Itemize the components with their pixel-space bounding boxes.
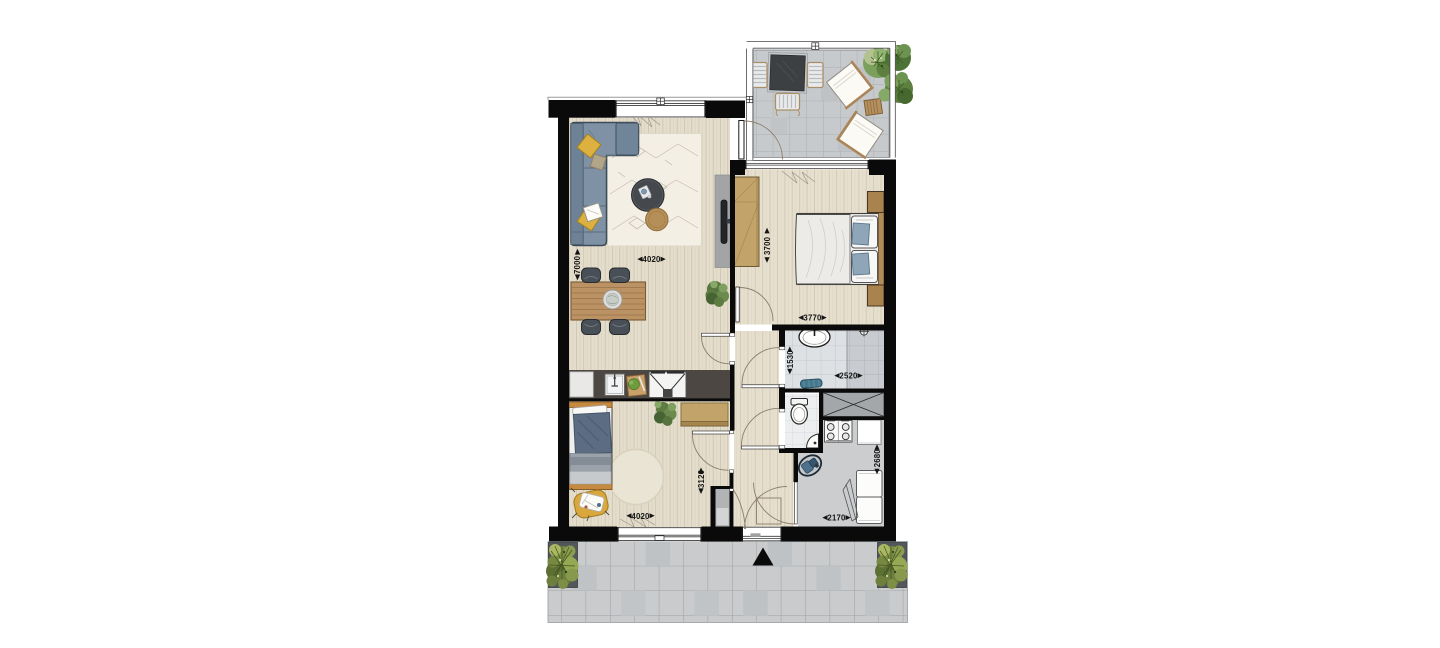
svg-text:1530: 1530: [786, 350, 795, 369]
svg-text:3770: 3770: [803, 314, 822, 323]
svg-text:3700: 3700: [763, 236, 772, 255]
svg-text:4020: 4020: [642, 255, 661, 264]
svg-text:7000: 7000: [573, 255, 582, 274]
svg-text:4020: 4020: [631, 512, 650, 521]
svg-text:2680: 2680: [873, 449, 882, 468]
svg-text:3120: 3120: [697, 469, 706, 488]
svg-text:2520: 2520: [839, 372, 858, 381]
svg-text:2170: 2170: [827, 514, 846, 523]
